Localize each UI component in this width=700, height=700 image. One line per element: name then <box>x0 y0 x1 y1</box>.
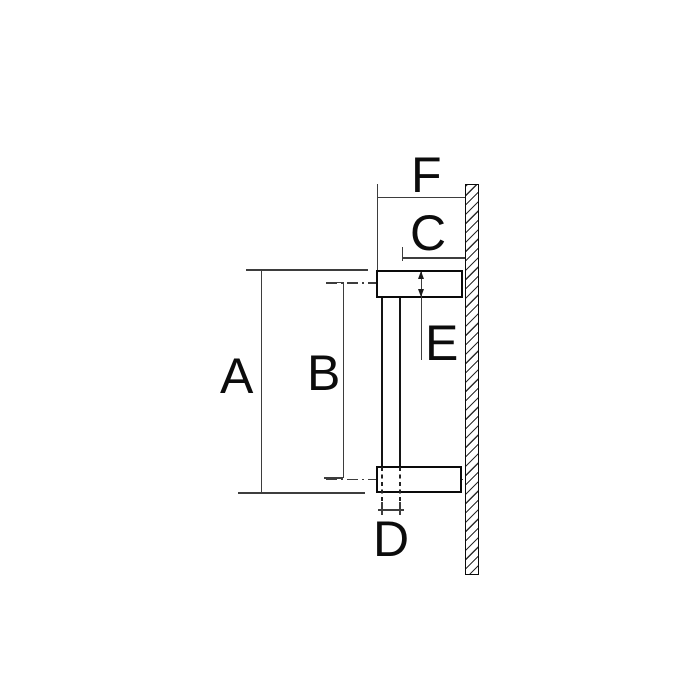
dim-label-B: B <box>307 348 340 398</box>
wall-hatched-section <box>465 184 479 575</box>
handle-bar-left-edge <box>381 296 383 467</box>
dim-label-A: A <box>220 351 253 401</box>
dim-label-E: E <box>425 318 458 368</box>
dim-B-line <box>343 282 344 478</box>
dim-A-line <box>261 270 262 493</box>
dim-label-D: D <box>373 514 409 564</box>
dim-A-top-line <box>246 269 368 270</box>
dim-E-arrow-up-icon <box>418 271 424 279</box>
dim-C-extension-tick <box>402 247 403 261</box>
dim-E-line <box>421 272 422 360</box>
dim-label-C: C <box>410 208 446 258</box>
dim-E-arrow-down-icon <box>418 289 424 297</box>
bottom-bracket <box>376 466 462 494</box>
dim-label-F: F <box>411 150 442 200</box>
dim-A-bottom-line <box>238 492 365 493</box>
technical-drawing-canvas: F C A B E D <box>0 0 700 700</box>
handle-bar-right-edge <box>399 296 401 467</box>
